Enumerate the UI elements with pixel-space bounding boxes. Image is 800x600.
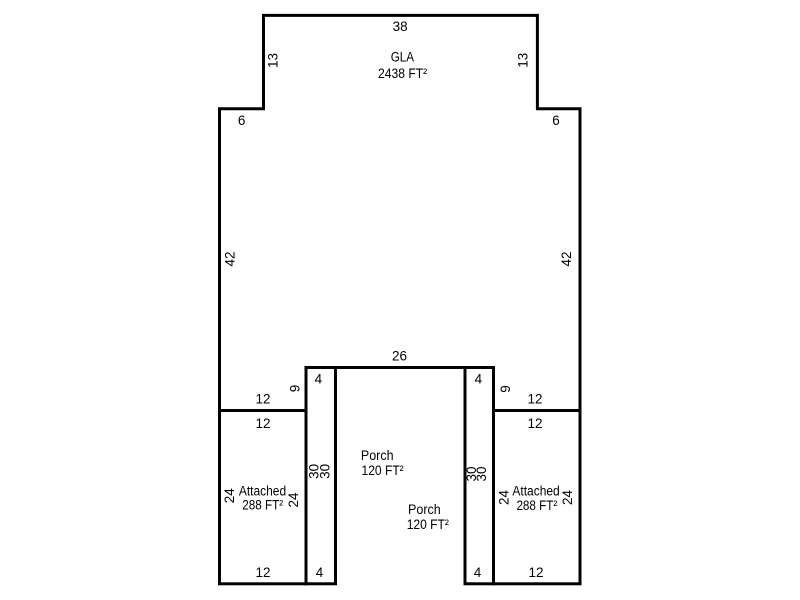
svg-text:GLA: GLA [391, 49, 414, 64]
svg-text:12: 12 [528, 565, 543, 580]
svg-text:30: 30 [474, 466, 489, 481]
svg-text:42: 42 [223, 251, 238, 266]
svg-text:4: 4 [474, 565, 482, 580]
svg-text:4: 4 [316, 565, 324, 580]
svg-text:Porch: Porch [361, 448, 394, 463]
svg-text:24: 24 [496, 490, 511, 506]
svg-text:Attached: Attached [239, 483, 286, 498]
svg-text:12: 12 [255, 565, 270, 580]
svg-text:30: 30 [318, 464, 333, 479]
svg-text:12: 12 [255, 416, 270, 431]
svg-text:42: 42 [559, 251, 574, 266]
svg-text:6: 6 [552, 113, 560, 128]
svg-text:12: 12 [527, 391, 542, 406]
svg-text:120 FT²: 120 FT² [362, 463, 405, 478]
svg-text:26: 26 [392, 349, 407, 364]
svg-text:2438 FT²: 2438 FT² [378, 66, 428, 81]
svg-text:12: 12 [255, 391, 270, 406]
svg-text:4: 4 [315, 371, 323, 386]
svg-text:288 FT²: 288 FT² [516, 498, 557, 513]
svg-text:Attached: Attached [512, 484, 559, 499]
svg-text:13: 13 [515, 53, 530, 68]
svg-text:6: 6 [238, 113, 246, 128]
svg-text:120 FT²: 120 FT² [407, 517, 450, 532]
svg-text:Porch: Porch [408, 502, 441, 517]
svg-text:9: 9 [498, 385, 513, 393]
svg-text:24: 24 [222, 488, 237, 504]
svg-text:38: 38 [393, 19, 408, 34]
svg-text:24: 24 [286, 492, 301, 508]
svg-text:4: 4 [475, 371, 483, 386]
svg-text:24: 24 [560, 490, 575, 506]
svg-text:9: 9 [287, 385, 302, 393]
svg-text:288 FT²: 288 FT² [242, 498, 283, 513]
svg-text:13: 13 [265, 53, 280, 68]
svg-text:12: 12 [527, 416, 542, 431]
